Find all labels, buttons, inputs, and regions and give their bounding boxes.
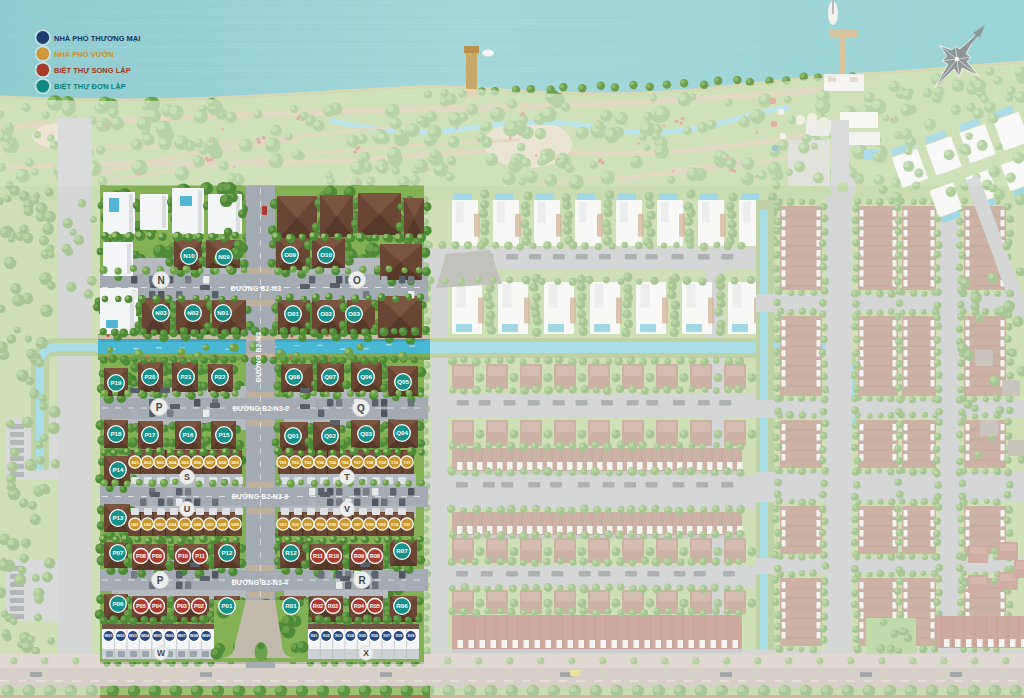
svg-text:P: P bbox=[157, 575, 164, 586]
svg-text:Q03: Q03 bbox=[360, 430, 372, 437]
svg-text:T07: T07 bbox=[354, 460, 362, 465]
svg-text:Q04: Q04 bbox=[396, 429, 408, 436]
svg-text:R01: R01 bbox=[285, 602, 297, 609]
svg-text:Q: Q bbox=[357, 403, 365, 414]
svg-text:N: N bbox=[157, 275, 164, 286]
svg-text:NHÀ PHỐ VƯỜN: NHÀ PHỐ VƯỜN bbox=[54, 49, 114, 59]
svg-text:V08: V08 bbox=[366, 522, 374, 527]
svg-text:V07: V07 bbox=[354, 522, 362, 527]
svg-text:U03: U03 bbox=[156, 522, 164, 527]
svg-text:V04: V04 bbox=[316, 522, 324, 527]
svg-text:P11: P11 bbox=[195, 553, 205, 559]
svg-text:P18: P18 bbox=[110, 430, 122, 437]
svg-text:U05: U05 bbox=[181, 522, 189, 527]
svg-text:R03: R03 bbox=[328, 603, 338, 609]
svg-text:P: P bbox=[156, 402, 163, 413]
svg-text:V09: V09 bbox=[378, 522, 386, 527]
svg-text:R07: R07 bbox=[396, 547, 408, 554]
svg-text:W06: W06 bbox=[165, 633, 174, 638]
svg-text:U08: U08 bbox=[219, 522, 227, 527]
svg-text:S06: S06 bbox=[194, 460, 202, 465]
svg-text:U01: U01 bbox=[131, 522, 139, 527]
svg-text:U: U bbox=[184, 504, 191, 514]
svg-text:X01: X01 bbox=[310, 633, 318, 638]
svg-text:S07: S07 bbox=[206, 460, 214, 465]
svg-text:W04: W04 bbox=[141, 633, 150, 638]
svg-text:U02: U02 bbox=[144, 522, 152, 527]
svg-text:P09: P09 bbox=[152, 553, 162, 559]
svg-text:U07: U07 bbox=[206, 522, 214, 527]
svg-text:N10: N10 bbox=[183, 252, 195, 259]
svg-text:P16: P16 bbox=[182, 431, 194, 438]
svg-text:Q05: Q05 bbox=[397, 378, 409, 385]
svg-text:W07: W07 bbox=[178, 633, 187, 638]
svg-text:ĐƯỜNG B2-N3-3: ĐƯỜNG B2-N3-3 bbox=[232, 492, 289, 500]
svg-text:O09: O09 bbox=[284, 251, 296, 258]
svg-text:S03: S03 bbox=[156, 460, 164, 465]
svg-text:T04: T04 bbox=[317, 460, 325, 465]
svg-text:R10: R10 bbox=[329, 553, 339, 559]
svg-text:T09: T09 bbox=[379, 460, 387, 465]
svg-text:S: S bbox=[184, 472, 190, 482]
svg-text:Q06: Q06 bbox=[360, 373, 372, 380]
svg-text:V11: V11 bbox=[403, 522, 411, 527]
svg-text:V06: V06 bbox=[341, 522, 349, 527]
svg-text:W05: W05 bbox=[153, 633, 162, 638]
svg-text:BIỆT THỰ ĐƠN LẬP: BIỆT THỰ ĐƠN LẬP bbox=[54, 82, 126, 91]
svg-text:V10: V10 bbox=[391, 522, 399, 527]
svg-text:S08: S08 bbox=[219, 460, 227, 465]
svg-text:R02: R02 bbox=[313, 603, 323, 609]
svg-text:X03: X03 bbox=[335, 633, 343, 638]
svg-text:V03: V03 bbox=[304, 522, 312, 527]
svg-text:ĐƯỜNG B2-N3-2: ĐƯỜNG B2-N3-2 bbox=[233, 404, 290, 412]
svg-text:P07: P07 bbox=[112, 549, 124, 556]
svg-text:U04: U04 bbox=[169, 522, 177, 527]
svg-text:P19: P19 bbox=[110, 379, 122, 386]
svg-text:W02: W02 bbox=[117, 633, 126, 638]
svg-text:Q07: Q07 bbox=[324, 373, 336, 380]
svg-text:N09: N09 bbox=[218, 253, 230, 260]
svg-text:X08: X08 bbox=[395, 633, 403, 638]
svg-text:T02: T02 bbox=[292, 460, 300, 465]
svg-text:X04: X04 bbox=[347, 633, 355, 638]
svg-text:R12: R12 bbox=[285, 549, 297, 556]
svg-text:V: V bbox=[344, 504, 350, 514]
svg-text:T: T bbox=[344, 472, 350, 482]
svg-text:T11: T11 bbox=[404, 460, 412, 465]
svg-text:R04: R04 bbox=[354, 603, 365, 609]
svg-text:Q08: Q08 bbox=[288, 373, 300, 380]
svg-text:P06: P06 bbox=[112, 600, 124, 607]
svg-text:U09: U09 bbox=[231, 522, 239, 527]
svg-text:X06: X06 bbox=[371, 633, 379, 638]
svg-text:T08: T08 bbox=[366, 460, 374, 465]
svg-text:S01: S01 bbox=[131, 460, 139, 465]
svg-text:R05: R05 bbox=[370, 603, 380, 609]
svg-text:P04: P04 bbox=[152, 603, 163, 609]
svg-text:R: R bbox=[358, 575, 366, 586]
svg-text:W09: W09 bbox=[202, 633, 211, 638]
svg-text:S05: S05 bbox=[181, 460, 189, 465]
svg-text:NHÀ PHỐ THƯƠNG MẠI: NHÀ PHỐ THƯƠNG MẠI bbox=[54, 33, 140, 43]
svg-text:S04: S04 bbox=[169, 460, 177, 465]
svg-text:R09: R09 bbox=[354, 553, 364, 559]
svg-text:O10: O10 bbox=[320, 251, 332, 258]
svg-text:O02: O02 bbox=[320, 310, 332, 317]
svg-text:P15: P15 bbox=[218, 431, 230, 438]
svg-text:T03: T03 bbox=[304, 460, 312, 465]
svg-text:Q02: Q02 bbox=[324, 432, 336, 439]
svg-text:P14: P14 bbox=[112, 466, 124, 473]
svg-text:S09: S09 bbox=[231, 460, 239, 465]
svg-text:R08: R08 bbox=[370, 553, 380, 559]
svg-text:ĐƯỜNG B2-N3: ĐƯỜNG B2-N3 bbox=[231, 284, 281, 292]
svg-text:O: O bbox=[353, 275, 361, 286]
svg-text:W03: W03 bbox=[129, 633, 138, 638]
svg-text:X07: X07 bbox=[383, 633, 391, 638]
svg-text:O01: O01 bbox=[287, 310, 299, 317]
svg-text:P01: P01 bbox=[221, 602, 233, 609]
svg-text:X02: X02 bbox=[323, 633, 331, 638]
svg-text:X05: X05 bbox=[359, 633, 367, 638]
svg-text:T05: T05 bbox=[329, 460, 337, 465]
svg-text:N01: N01 bbox=[217, 309, 229, 316]
svg-text:P17: P17 bbox=[144, 431, 156, 438]
svg-text:O03: O03 bbox=[348, 310, 360, 317]
svg-text:T01: T01 bbox=[279, 460, 287, 465]
svg-text:P10: P10 bbox=[178, 553, 188, 559]
svg-text:P05: P05 bbox=[136, 603, 146, 609]
svg-text:P08: P08 bbox=[136, 553, 146, 559]
svg-text:P21: P21 bbox=[180, 373, 192, 380]
svg-text:X: X bbox=[363, 648, 369, 658]
svg-text:N03: N03 bbox=[155, 309, 167, 316]
svg-text:V05: V05 bbox=[329, 522, 337, 527]
svg-text:X09: X09 bbox=[407, 633, 415, 638]
svg-text:P03: P03 bbox=[177, 603, 187, 609]
svg-text:R06: R06 bbox=[396, 602, 408, 609]
svg-text:P02: P02 bbox=[194, 603, 204, 609]
svg-text:ĐƯỜNG B2-N3: ĐƯỜNG B2-N3 bbox=[254, 332, 262, 382]
svg-text:N02: N02 bbox=[187, 309, 199, 316]
svg-text:S02: S02 bbox=[144, 460, 152, 465]
svg-text:V02: V02 bbox=[292, 522, 300, 527]
svg-text:U06: U06 bbox=[194, 522, 202, 527]
svg-text:W: W bbox=[157, 648, 166, 658]
svg-text:R11: R11 bbox=[313, 553, 323, 559]
svg-text:T10: T10 bbox=[391, 460, 399, 465]
svg-text:P22: P22 bbox=[214, 373, 226, 380]
svg-text:T06: T06 bbox=[341, 460, 349, 465]
svg-text:P12: P12 bbox=[221, 549, 233, 556]
svg-text:W08: W08 bbox=[190, 633, 199, 638]
svg-text:W01: W01 bbox=[104, 633, 113, 638]
svg-text:Q01: Q01 bbox=[287, 432, 299, 439]
svg-text:P13: P13 bbox=[112, 514, 124, 521]
svg-text:ĐƯỜNG B2-N3-4: ĐƯỜNG B2-N3-4 bbox=[232, 578, 289, 586]
svg-text:P20: P20 bbox=[144, 373, 156, 380]
svg-text:BIỆT THỰ SONG LẬP: BIỆT THỰ SONG LẬP bbox=[54, 66, 131, 75]
svg-text:V01: V01 bbox=[279, 522, 287, 527]
